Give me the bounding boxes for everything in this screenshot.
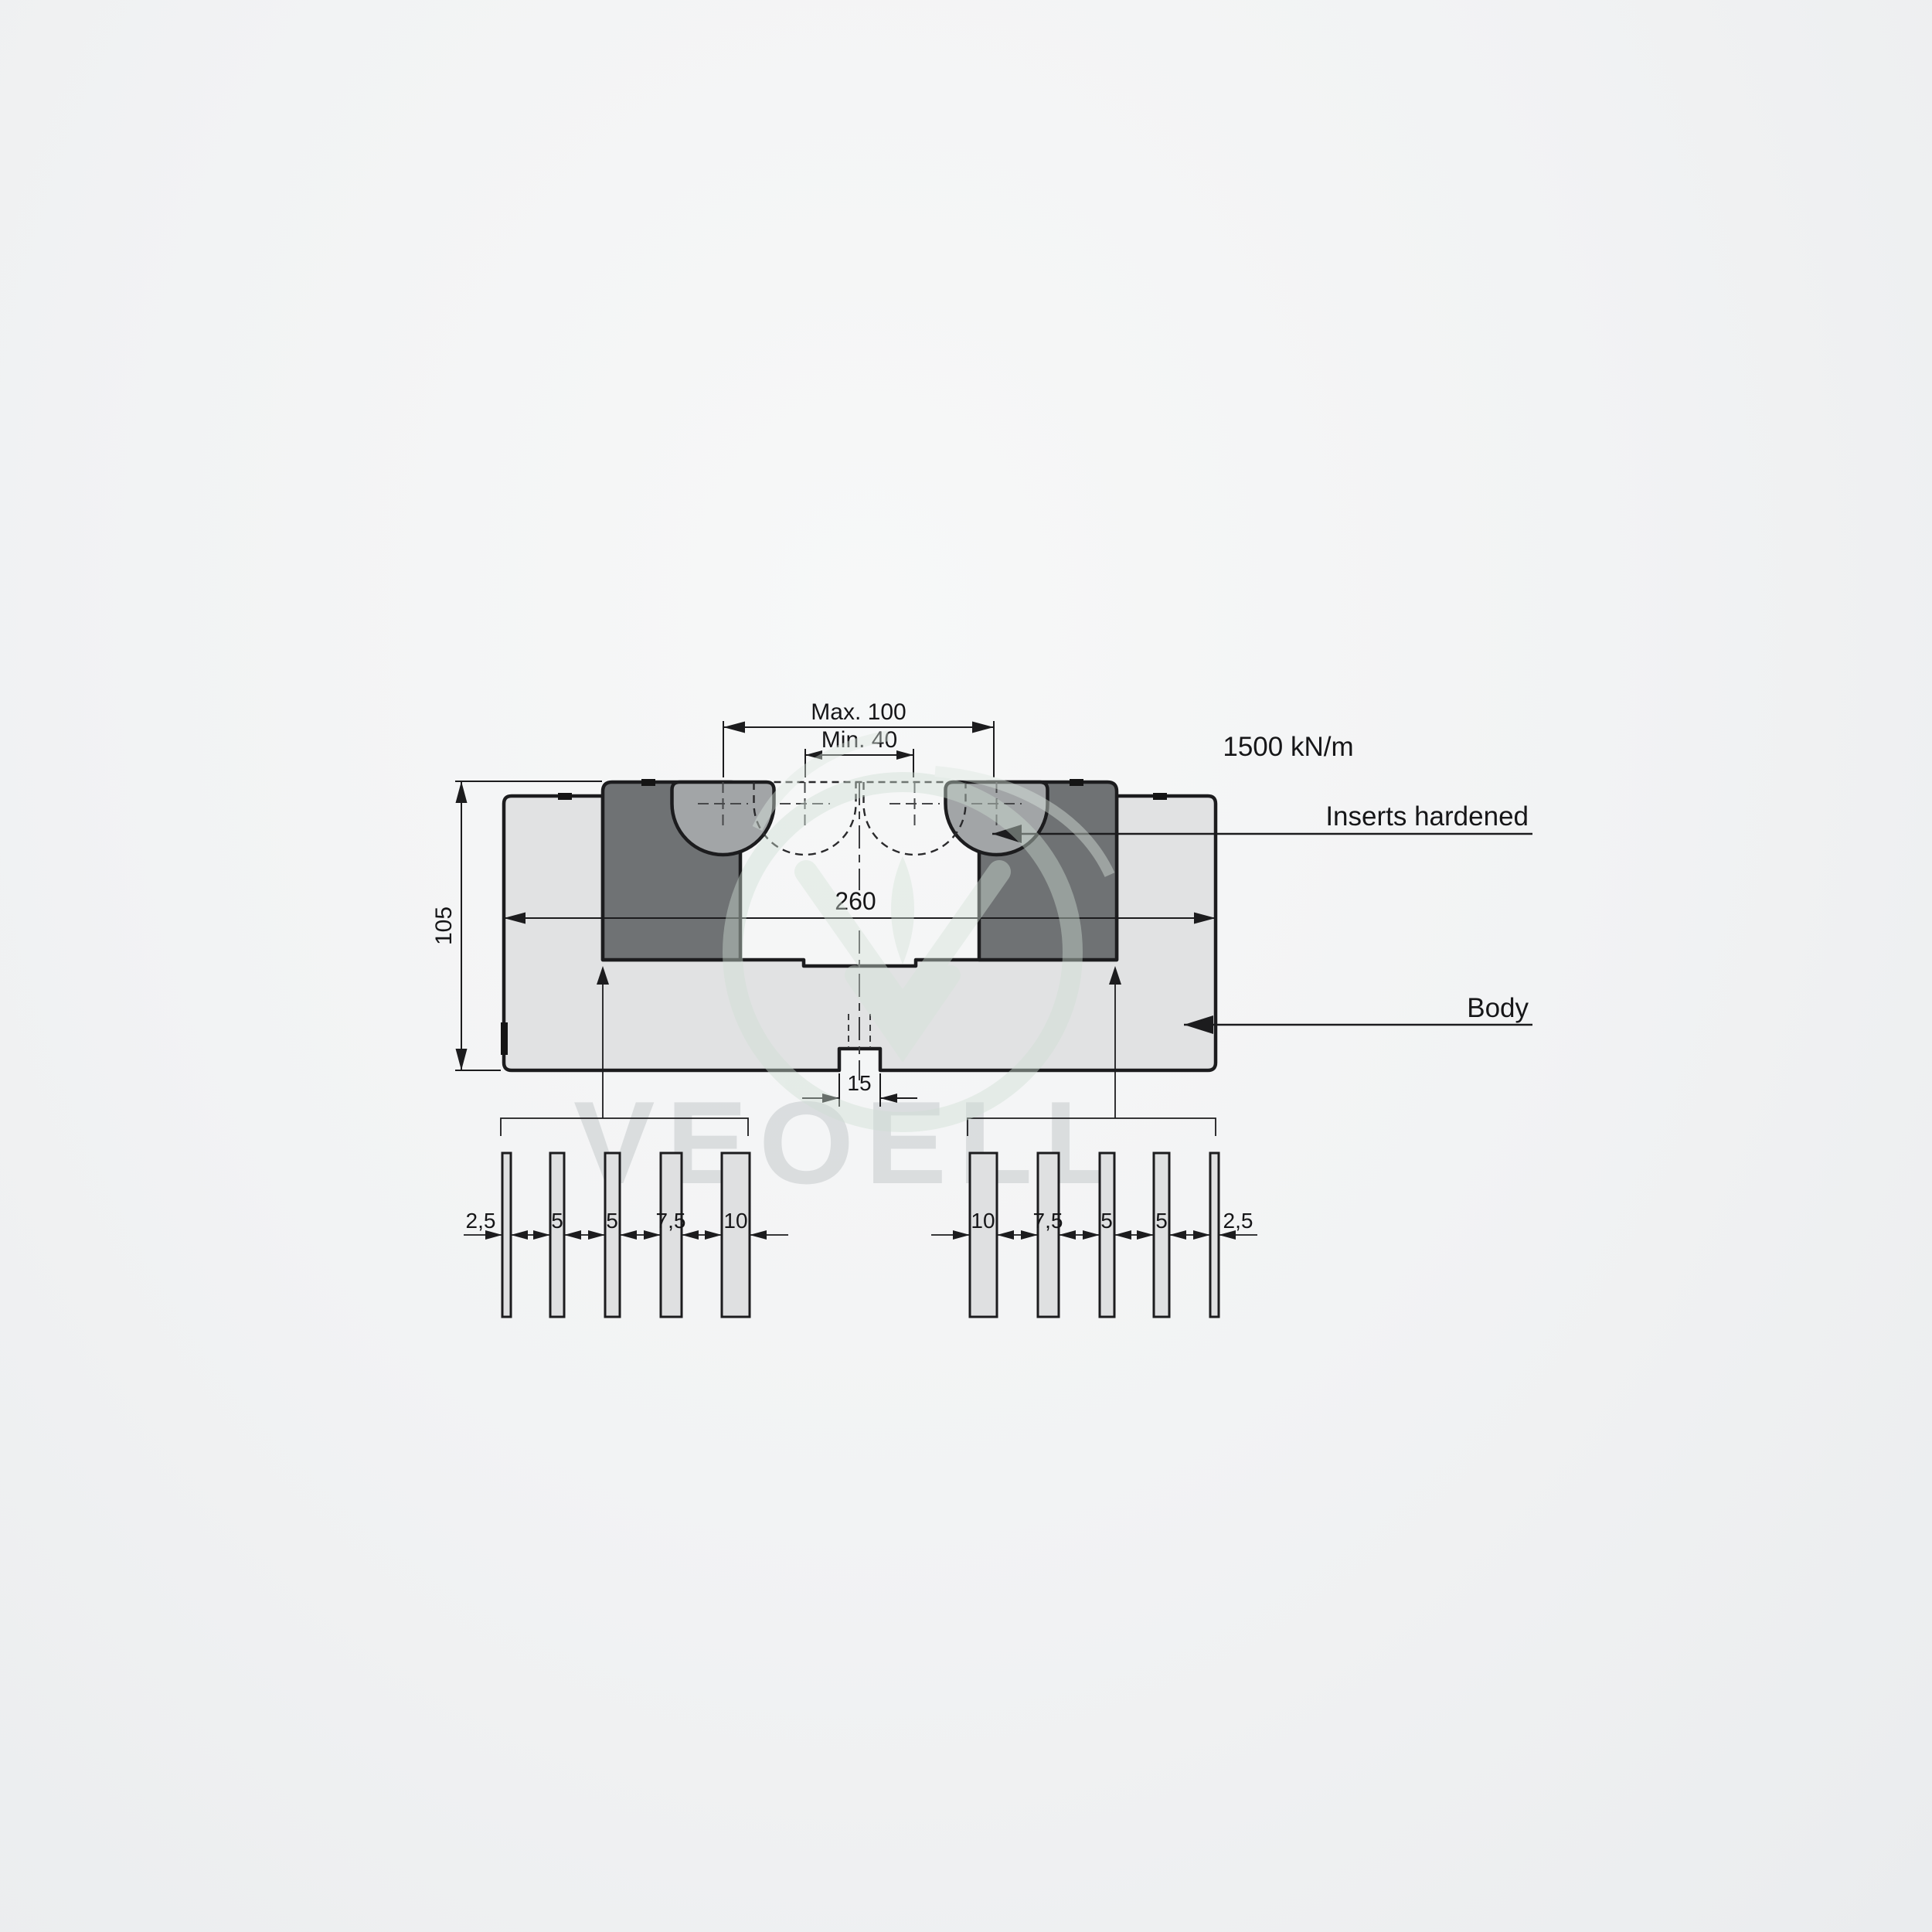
body-ear-tick-right bbox=[1153, 793, 1167, 800]
shim-plate bbox=[1154, 1153, 1169, 1317]
shim-bracket bbox=[501, 1118, 748, 1136]
body-ear-tick-left bbox=[558, 793, 572, 800]
shim-plate bbox=[550, 1153, 564, 1317]
shim-plate bbox=[661, 1153, 682, 1317]
shim-thickness-label: 5 bbox=[1100, 1209, 1113, 1233]
shim-thickness-label: 2,5 bbox=[466, 1209, 496, 1233]
holder-tick-left bbox=[641, 779, 655, 786]
shim-thickness-label: 5 bbox=[1155, 1209, 1168, 1233]
shim-plate bbox=[970, 1153, 997, 1317]
shim-thickness-label: 10 bbox=[723, 1209, 747, 1233]
shim-plate bbox=[1038, 1153, 1059, 1317]
die-technical-drawing: Max. 100 Min. 40 260 105 15 1500 kN/m In… bbox=[0, 0, 1932, 1932]
callout-inserts-label: Inserts hardened bbox=[1325, 801, 1529, 832]
dim-body-height-label: 105 bbox=[431, 906, 457, 945]
shim-thickness-label: 5 bbox=[551, 1209, 563, 1233]
shim-thickness-label: 10 bbox=[971, 1209, 995, 1233]
callout-body: Body bbox=[1184, 993, 1532, 1034]
page-background: VEOELL bbox=[0, 0, 1932, 1932]
force-rating-label: 1500 kN/m bbox=[1223, 732, 1353, 762]
shim-plate bbox=[605, 1153, 620, 1317]
shim-thickness-label: 7,5 bbox=[1033, 1209, 1063, 1233]
shim-plate bbox=[1210, 1153, 1219, 1317]
shim-plate bbox=[722, 1153, 750, 1317]
shim-thickness-label: 5 bbox=[606, 1209, 618, 1233]
dim-max-opening-label: Max. 100 bbox=[811, 699, 906, 725]
shim-plate bbox=[1100, 1153, 1114, 1317]
shim-plate bbox=[502, 1153, 511, 1317]
dim-base-slot-label: 15 bbox=[847, 1071, 871, 1095]
holder-tick-right bbox=[1070, 779, 1083, 786]
callout-body-label: Body bbox=[1467, 993, 1529, 1023]
shim-thickness-label: 7,5 bbox=[656, 1209, 686, 1233]
body-edge-tick-left bbox=[501, 1022, 508, 1055]
shim-thickness-label: 2,5 bbox=[1223, 1209, 1253, 1233]
shim-bracket bbox=[968, 1118, 1216, 1136]
